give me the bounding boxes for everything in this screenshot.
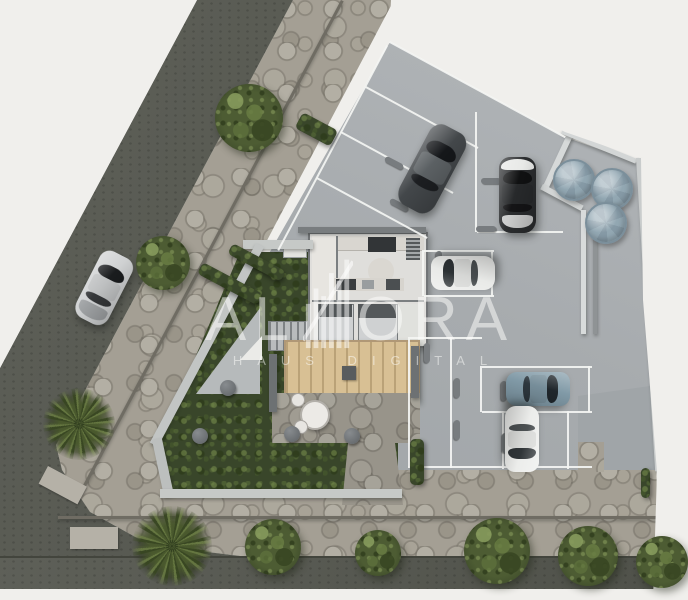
street-bottom	[0, 556, 658, 591]
kitchen-sink	[362, 280, 374, 289]
canvas-mask-bottom	[0, 589, 688, 600]
site-plan-scene: AL ORA HAUS DIGITAL	[0, 0, 688, 600]
patio-chair	[291, 393, 305, 407]
kitchen-vent-grate	[406, 238, 420, 260]
bathroom-b-shower	[358, 304, 396, 318]
kitchen-appliance	[386, 279, 400, 290]
deck-post	[342, 366, 356, 380]
room-left	[312, 236, 336, 300]
kitchen-stove	[368, 237, 396, 252]
porch	[283, 241, 307, 258]
kitchen-cooktop	[336, 279, 356, 290]
bathroom-a-shower	[318, 304, 352, 317]
gate-opening	[578, 442, 604, 472]
house-floorplan	[308, 232, 428, 348]
interior-wall-horizontal	[312, 300, 424, 302]
patio-chair	[294, 420, 308, 434]
